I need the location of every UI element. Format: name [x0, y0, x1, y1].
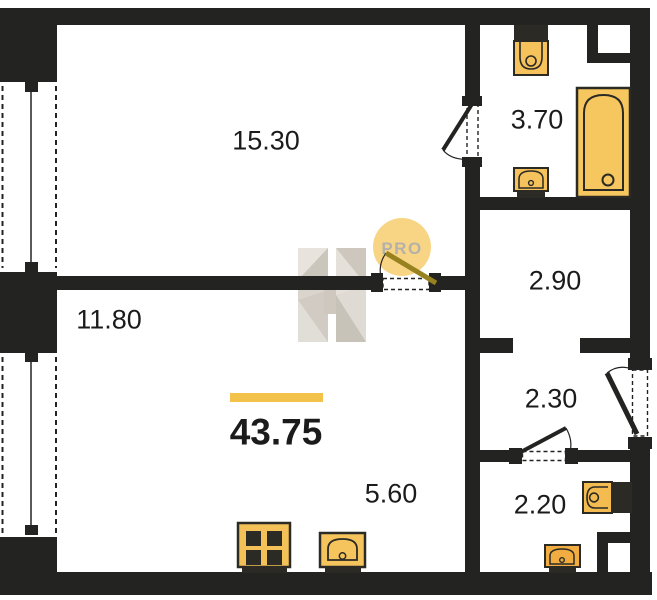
sink-icon [514, 168, 548, 198]
shaft-top-lip [587, 53, 630, 63]
wall-divider-left [0, 276, 375, 290]
room-area-label-bedroom: 11.80 [76, 307, 142, 334]
wall-pier-top-left [0, 8, 57, 82]
door-jamb [565, 448, 578, 464]
total-area-accent-line [230, 393, 323, 402]
door-jamb [462, 157, 482, 167]
wall-hall-bottom-right [580, 338, 630, 353]
bathtub-icon [577, 88, 630, 197]
wall-top [55, 8, 650, 25]
shaft-bottom-lip [597, 532, 632, 543]
door-jamb [628, 358, 652, 370]
wall-wc-top-left [465, 450, 512, 462]
kitchen-sink-icon [320, 533, 365, 573]
room-area-label-wc: 2.20 [514, 492, 567, 519]
stove-icon [238, 523, 290, 573]
wall-interior-vertical-upper [465, 25, 480, 98]
wall-wc-top-right [578, 450, 630, 462]
fixtures [238, 25, 632, 573]
room-area-label-living: 15.30 [232, 128, 300, 155]
wall-right-lower [630, 443, 650, 595]
room-area-label-hall-upper: 2.90 [529, 268, 582, 295]
bathroom-door [443, 100, 478, 159]
wall-hall-bottom-left [465, 338, 513, 353]
total-area-label: 43.75 [230, 414, 323, 451]
pro-badge: PRO [373, 218, 431, 276]
window-upper [3, 82, 57, 272]
wc-door [519, 428, 571, 461]
wall-bathroom-bottom [478, 197, 630, 210]
wall-right-upper [630, 8, 650, 365]
wc-sink-icon [545, 545, 580, 573]
floor-plan: PRO [0, 0, 657, 600]
door-jamb [628, 437, 652, 449]
wall-bottom [0, 572, 652, 595]
window-lower [3, 352, 57, 535]
watermark-logo [298, 248, 366, 342]
entry-door [607, 367, 648, 436]
toilet-icon [514, 25, 548, 75]
room-area-label-kitchen: 5.60 [365, 481, 418, 508]
room-area-label-bathroom: 3.70 [511, 107, 564, 134]
wc-toilet-icon [583, 482, 632, 513]
wall-interior-vertical-lower [465, 160, 480, 572]
room-area-label-entry-hall: 2.30 [525, 386, 578, 413]
